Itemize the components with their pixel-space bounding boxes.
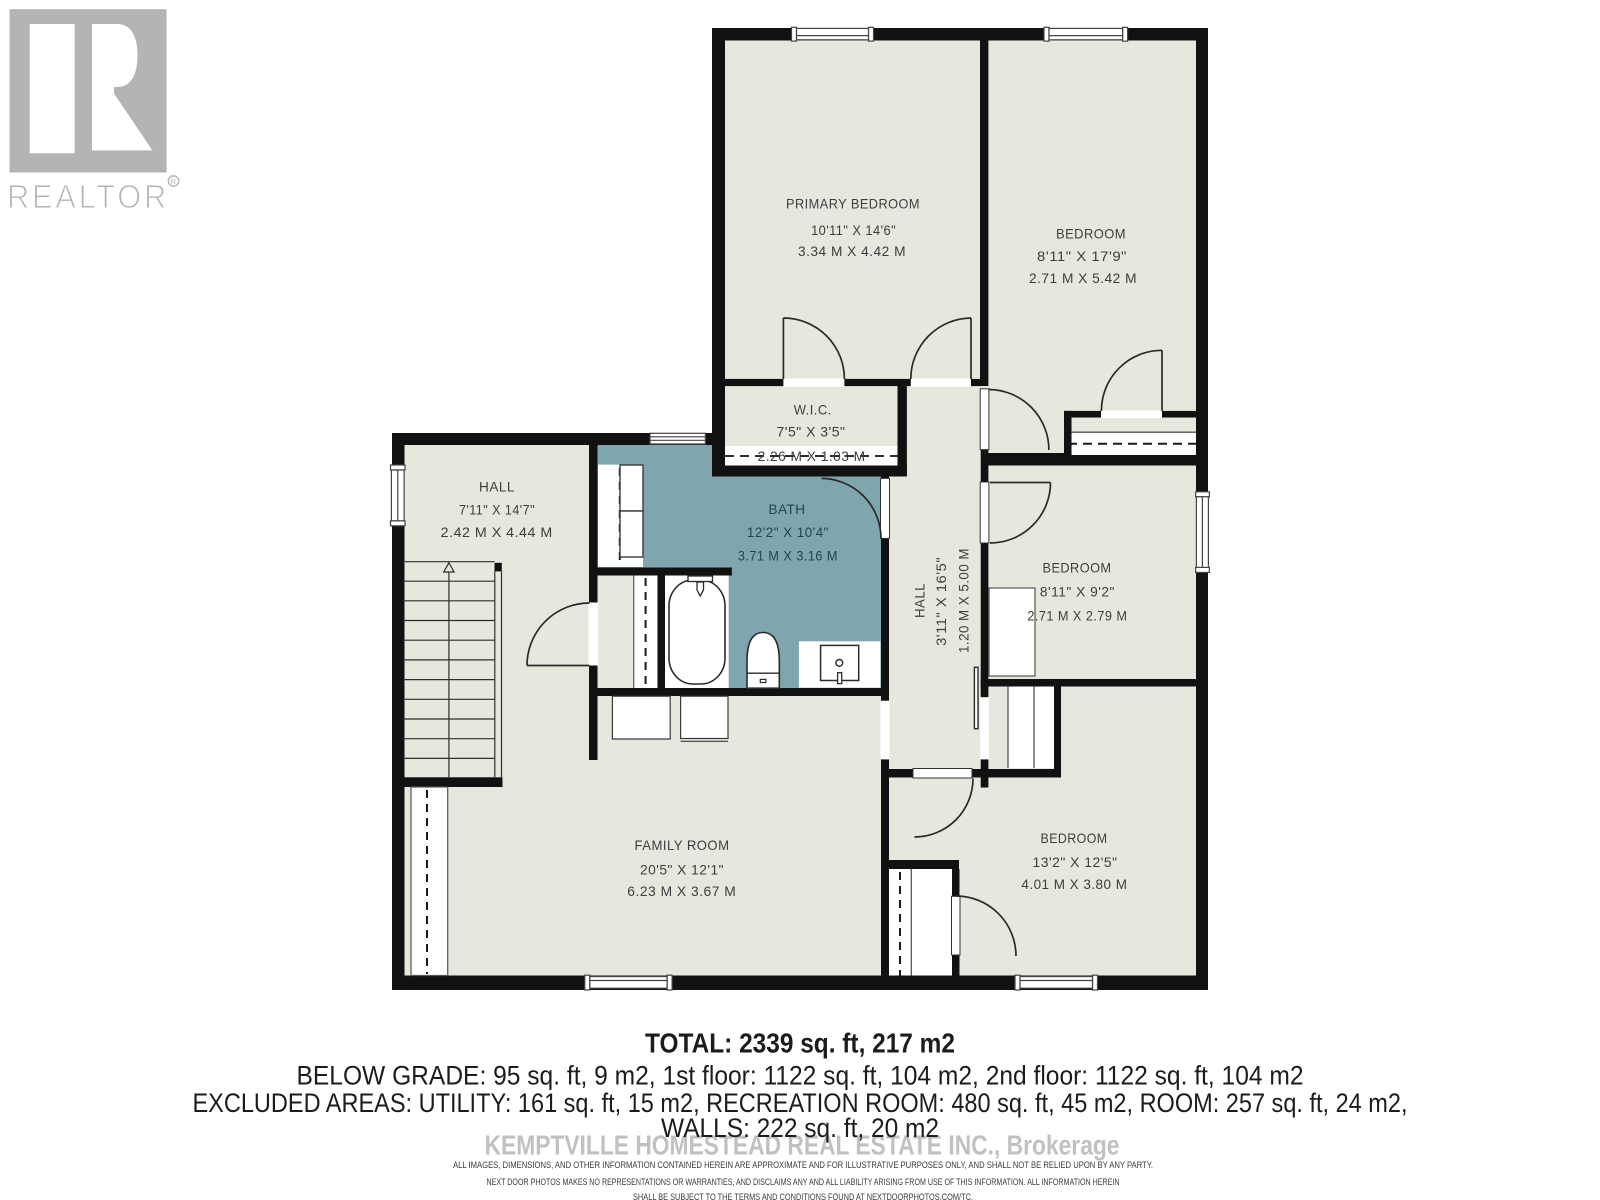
svg-text:2.71 M X 5.42 M: 2.71 M X 5.42 M xyxy=(1029,270,1137,286)
svg-text:BEDROOM: BEDROOM xyxy=(1056,226,1126,242)
svg-text:13'2" X 12'5": 13'2" X 12'5" xyxy=(1033,854,1118,870)
svg-text:REALTOR: REALTOR xyxy=(7,178,169,215)
svg-text:2.71 M X 2.79 M: 2.71 M X 2.79 M xyxy=(1027,608,1127,624)
svg-text:10'11" X 14'6": 10'11" X 14'6" xyxy=(811,222,896,238)
svg-text:ALL IMAGES, DIMENSIONS, AND OT: ALL IMAGES, DIMENSIONS, AND OTHER INFORM… xyxy=(453,1160,1153,1171)
svg-text:HALL: HALL xyxy=(911,583,927,618)
svg-text:FAMILY ROOM: FAMILY ROOM xyxy=(635,837,730,853)
svg-text:1.20 M X 5.00 M: 1.20 M X 5.00 M xyxy=(956,548,972,653)
svg-text:2.26 M X 1.03 M: 2.26 M X 1.03 M xyxy=(758,448,866,464)
svg-text:8'11" X 9'2": 8'11" X 9'2" xyxy=(1040,584,1115,600)
svg-text:20'5" X 12'1": 20'5" X 12'1" xyxy=(640,861,724,877)
svg-text:7'11" X 14'7": 7'11" X 14'7" xyxy=(459,502,535,518)
svg-text:R: R xyxy=(171,177,177,186)
svg-text:PRIMARY BEDROOM: PRIMARY BEDROOM xyxy=(786,195,920,211)
svg-text:7'5" X 3'5": 7'5" X 3'5" xyxy=(777,424,846,440)
svg-text:6.23 M X 3.67 M: 6.23 M X 3.67 M xyxy=(627,883,736,899)
svg-text:W.I.C.: W.I.C. xyxy=(794,402,832,418)
svg-text:HALL: HALL xyxy=(479,479,515,495)
svg-text:BELOW GRADE: 95 sq. ft, 9 m2,: BELOW GRADE: 95 sq. ft, 9 m2, 1st floor:… xyxy=(297,1061,1304,1091)
svg-text:BATH: BATH xyxy=(769,501,806,517)
svg-text:12'2" X 10'4": 12'2" X 10'4" xyxy=(747,524,829,540)
svg-text:8'11" X 17'9": 8'11" X 17'9" xyxy=(1037,248,1127,264)
svg-text:BEDROOM: BEDROOM xyxy=(1041,830,1108,846)
svg-text:NEXT DOOR PHOTOS MAKES NO REPR: NEXT DOOR PHOTOS MAKES NO REPRESENTATION… xyxy=(487,1177,1120,1188)
svg-text:3.71 M X 3.16 M: 3.71 M X 3.16 M xyxy=(738,547,838,563)
svg-text:TOTAL: 2339 sq. ft, 217 m2: TOTAL: 2339 sq. ft, 217 m2 xyxy=(645,1028,955,1059)
svg-text:3'11" X 16'5": 3'11" X 16'5" xyxy=(933,557,949,646)
svg-text:BEDROOM: BEDROOM xyxy=(1043,560,1112,576)
svg-text:4.01 M X 3.80 M: 4.01 M X 3.80 M xyxy=(1021,876,1127,892)
svg-text:SHALL BE SUBJECT TO THE TERMS: SHALL BE SUBJECT TO THE TERMS AND CONDIT… xyxy=(633,1192,973,1200)
svg-text:2.42 M X 4.44 M: 2.42 M X 4.44 M xyxy=(441,524,553,540)
svg-text:WALLS: 222 sq. ft, 20 m2: WALLS: 222 sq. ft, 20 m2 xyxy=(661,1113,939,1143)
svg-text:3.34 M X 4.42 M: 3.34 M X 4.42 M xyxy=(798,243,906,259)
